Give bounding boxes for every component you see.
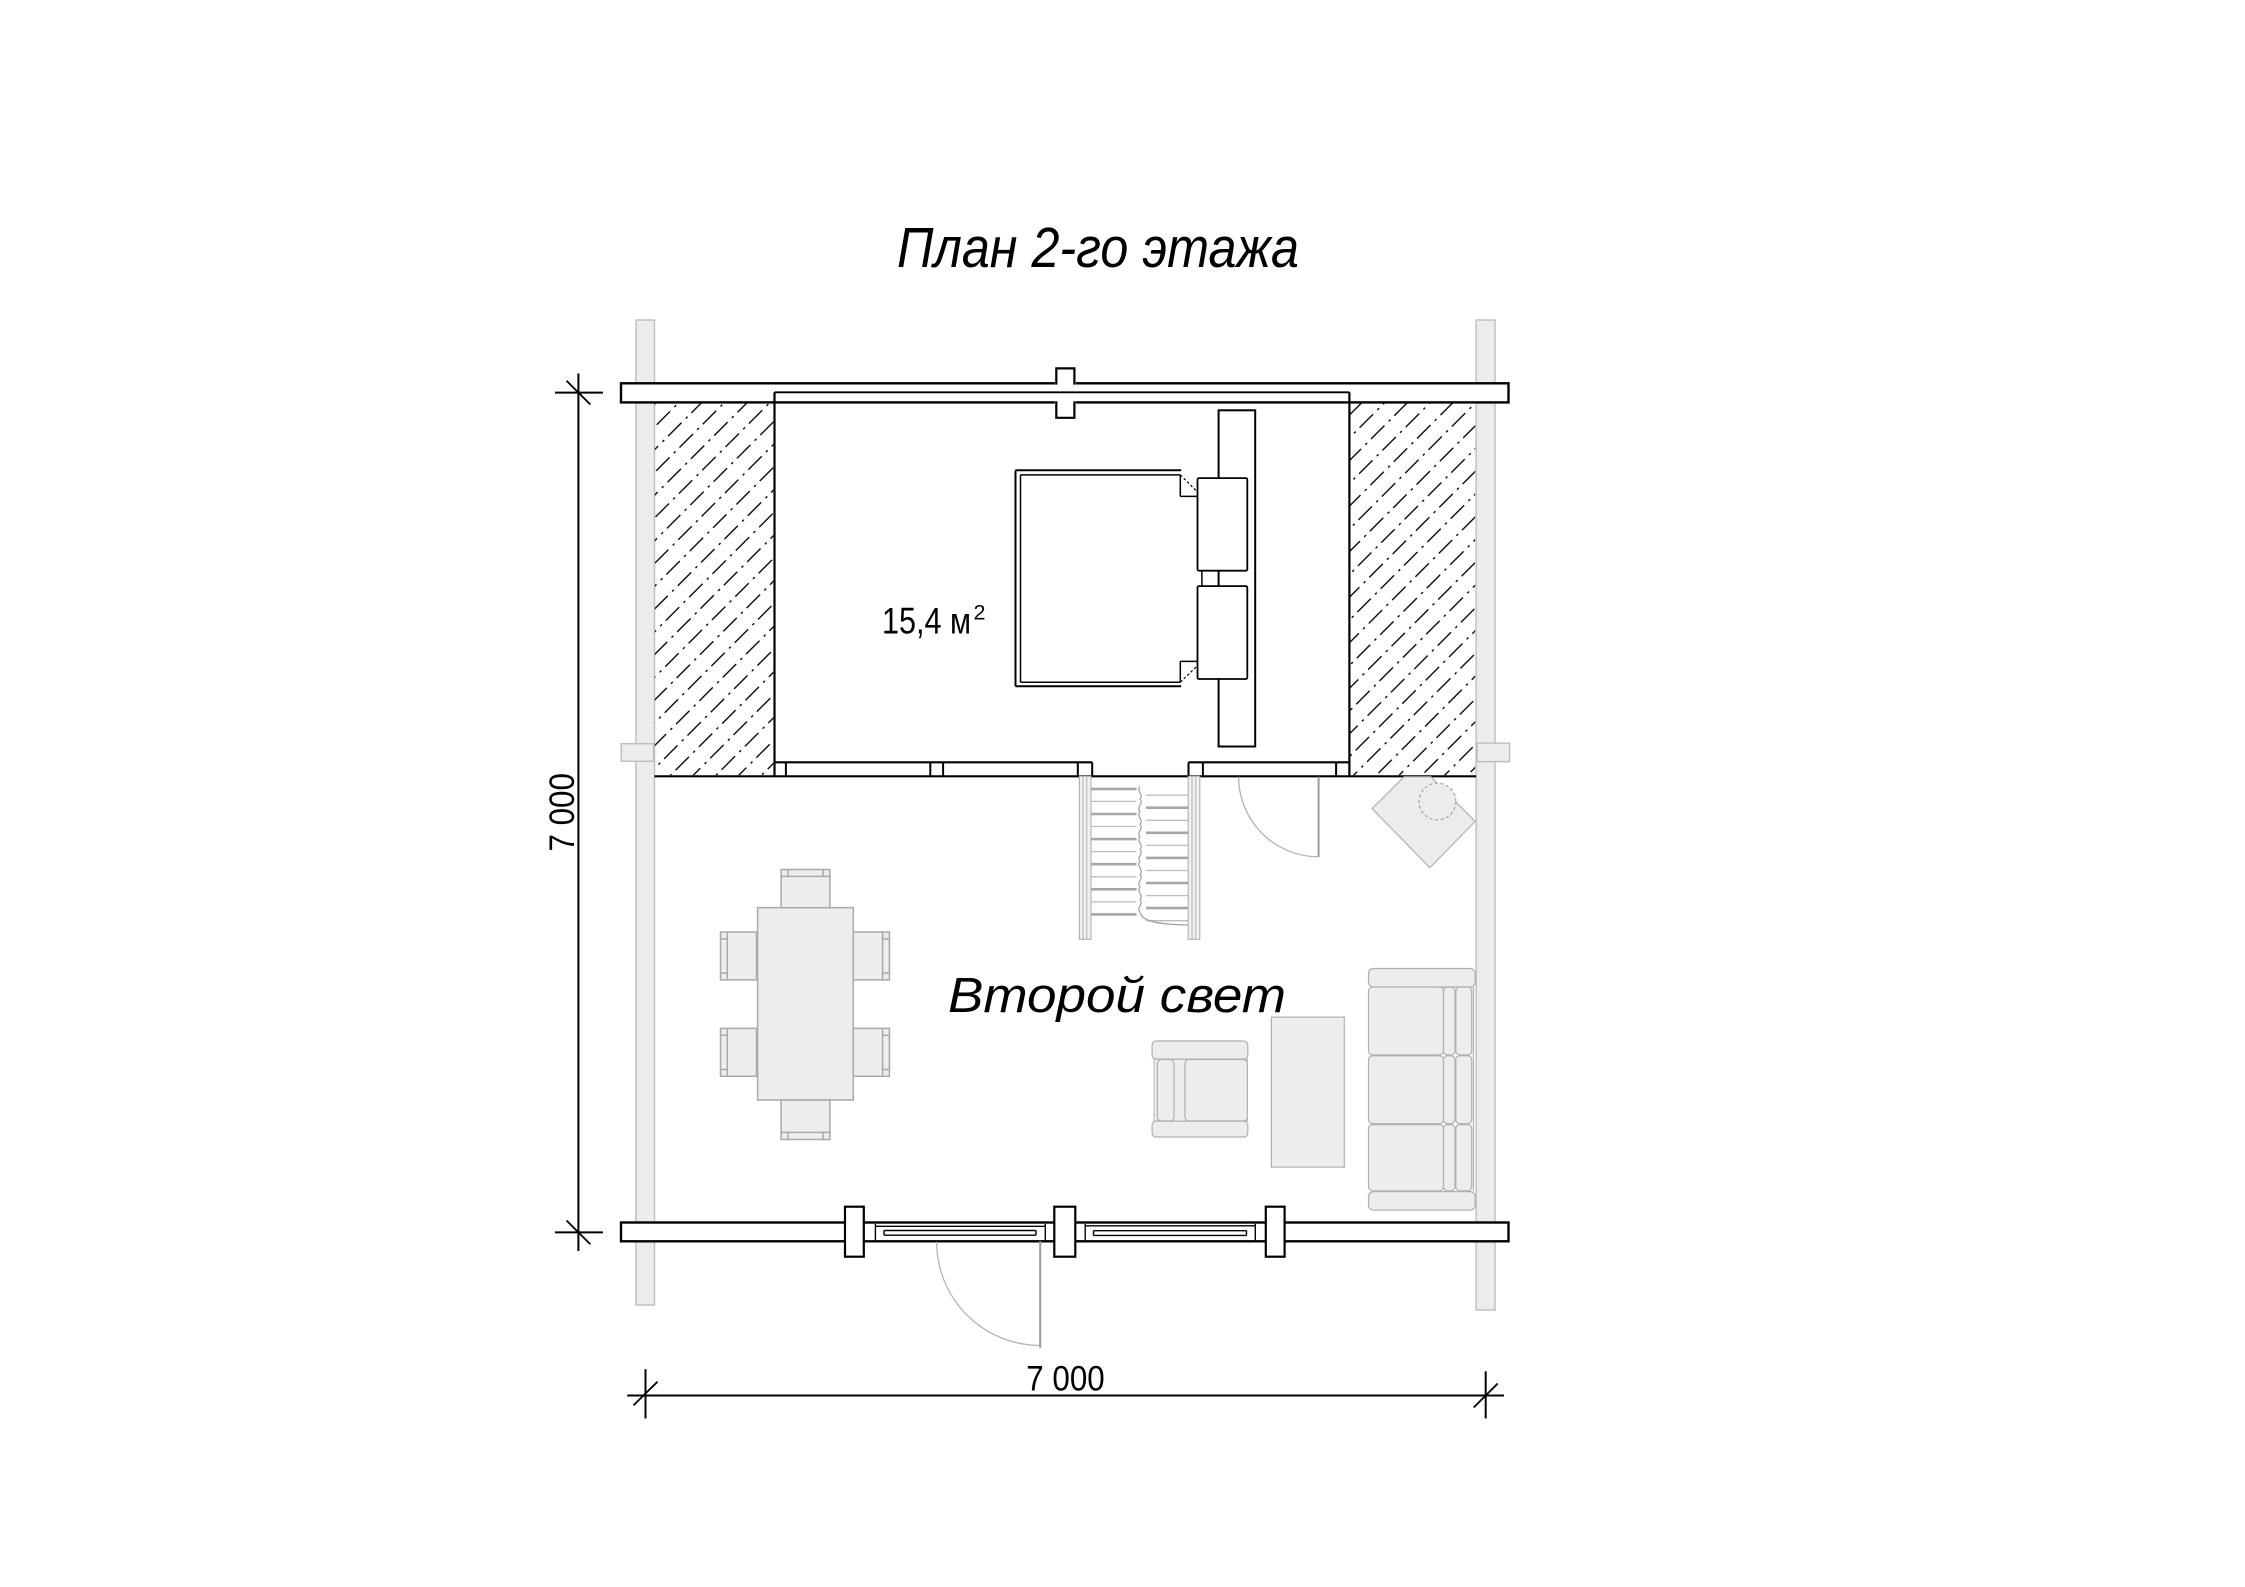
svg-text:15,4 м: 15,4 м bbox=[882, 601, 971, 642]
svg-text:План 2-го этажа: План 2-го этажа bbox=[897, 216, 1299, 280]
svg-text:7 000: 7 000 bbox=[1026, 1359, 1104, 1398]
svg-text:Второй свет: Второй свет bbox=[948, 969, 1286, 1023]
svg-text:7 000: 7 000 bbox=[543, 773, 582, 851]
svg-text:2: 2 bbox=[974, 601, 986, 625]
